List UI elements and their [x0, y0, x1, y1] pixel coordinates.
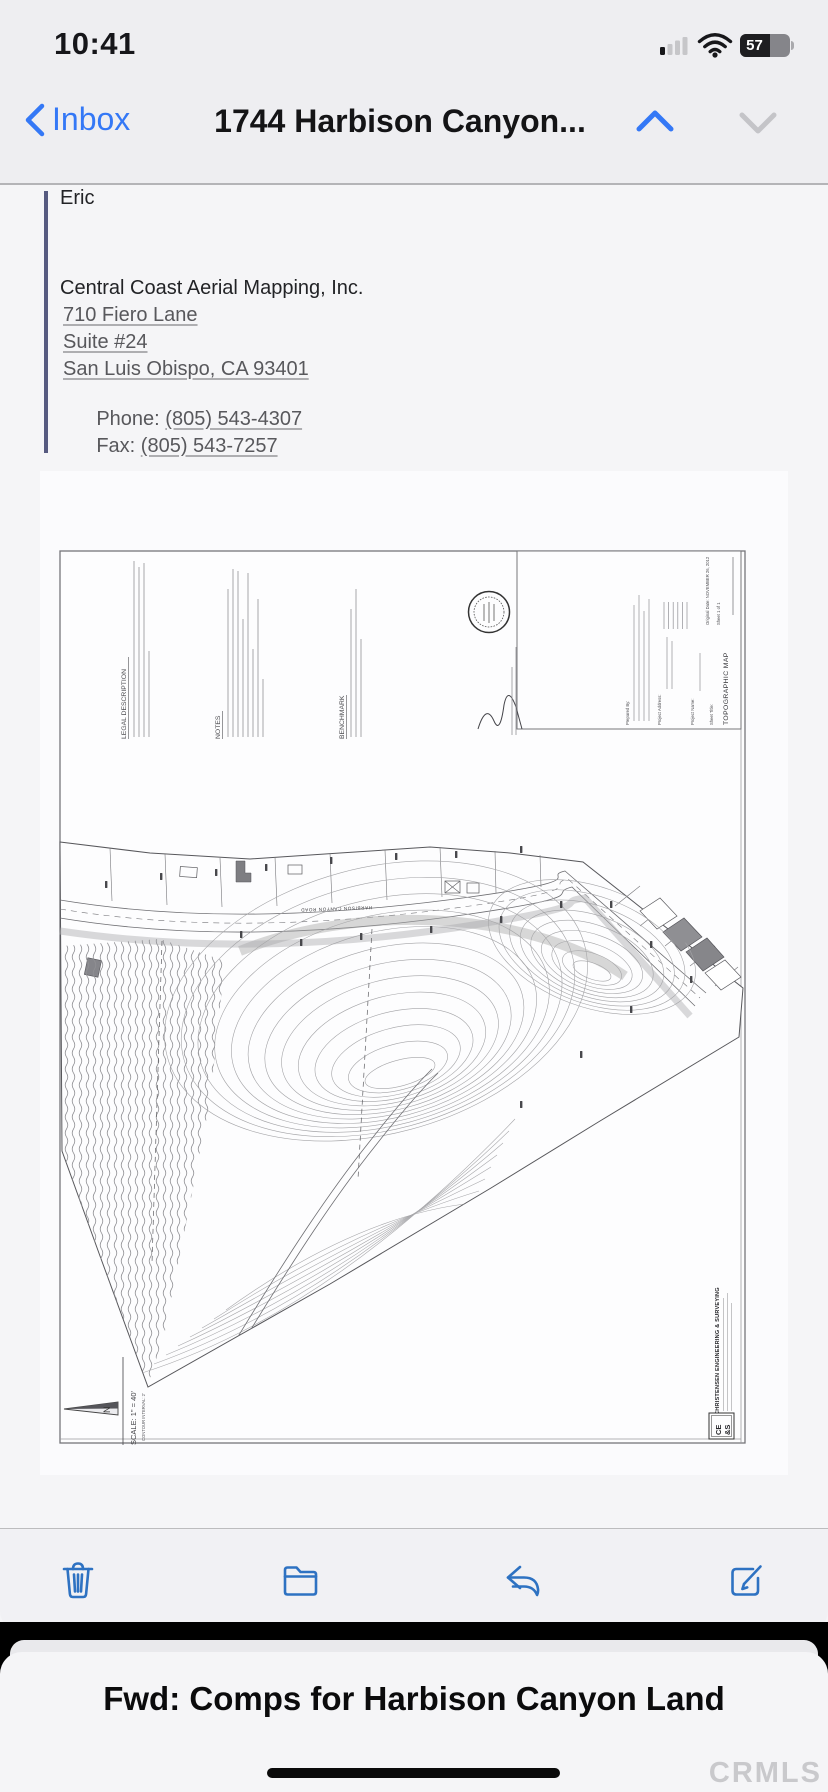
next-message-button chevron-down-icon[interactable]	[736, 103, 780, 143]
contour-interval-text: CONTOUR INTERVAL: 2'	[141, 1392, 146, 1440]
mail-app-screen: 10:41 57 Inbox 1744 Harbison Canyon...	[0, 0, 828, 1792]
svg-text:CE: CE	[714, 1424, 723, 1434]
scale-text: SCALE: 1" = 40'	[129, 1390, 138, 1444]
crmls-watermark: CRMLS	[709, 1757, 822, 1790]
battery-icon: 57	[740, 34, 795, 57]
status-time: 10:41	[54, 26, 136, 62]
legal-description-header: LEGAL DESCRIPTION	[121, 668, 128, 738]
email-greeting: Eric	[60, 187, 94, 210]
svg-text:N: N	[102, 1406, 112, 1413]
compose-button[interactable]	[723, 1556, 771, 1604]
reply-button[interactable]	[499, 1556, 547, 1604]
forward-draft-title: Fwd: Comps for Harbison Canyon Land	[0, 1680, 828, 1718]
project-name-label: Project Name:	[690, 698, 695, 725]
attachment-map-image[interactable]: LEGAL DESCRIPTION NOTES BENCHMARK	[40, 471, 788, 1475]
sheet-number-text: Sheet 1 of 1	[716, 601, 721, 624]
address-link-line3[interactable]: San Luis Obispo, CA 93401	[63, 358, 309, 381]
address-link-line1[interactable]: 710 Fiero Lane	[63, 304, 198, 327]
topographic-map-svg: LEGAL DESCRIPTION NOTES BENCHMARK	[40, 471, 788, 1475]
message-title: 1744 Harbison Canyon...	[150, 103, 650, 140]
back-label: Inbox	[52, 101, 130, 138]
fax-link[interactable]: (805) 543-7257	[141, 435, 278, 457]
sheet-title-text: TOPOGRAPHIC MAP	[723, 652, 730, 725]
home-indicator[interactable]	[267, 1768, 560, 1778]
svg-text:CHRISTENSEN ENGINEERING & SURV: CHRISTENSEN ENGINEERING & SURVEYING	[715, 1287, 721, 1415]
quote-level-bar	[44, 191, 48, 453]
notes-header: NOTES	[215, 715, 222, 739]
mail-toolbar	[0, 1528, 828, 1631]
move-to-folder-button[interactable]	[276, 1556, 324, 1604]
svg-text:&S: &S	[723, 1424, 732, 1434]
back-to-inbox-button[interactable]: Inbox	[24, 101, 130, 138]
fax-label: Fax:	[96, 435, 140, 457]
email-company: Central Coast Aerial Mapping, Inc.	[60, 277, 364, 300]
battery-percent: 57	[740, 34, 770, 57]
benchmark-header: BENCHMARK	[339, 695, 346, 739]
previous-message-button chevron-up-icon[interactable]	[633, 103, 677, 143]
project-address-label: Project Address:	[657, 694, 662, 725]
status-icons: 57	[660, 32, 795, 58]
address-link-line2[interactable]: Suite #24	[63, 331, 148, 354]
trash-button[interactable]	[54, 1556, 102, 1604]
forward-draft-sheet[interactable]: Fwd: Comps for Harbison Canyon Land	[0, 1652, 828, 1792]
chevron-left-icon	[24, 102, 46, 138]
wifi-icon	[697, 32, 733, 58]
prepared-by-label: Prepared By:	[625, 700, 630, 724]
email-body: Eric Central Coast Aerial Mapping, Inc. …	[0, 185, 828, 1528]
sheet-title-label: Sheet Title:	[709, 704, 714, 725]
original-date-text: Original Date: NOVEMBER 26, 2012	[705, 556, 710, 625]
cellular-signal-icon	[660, 34, 690, 56]
